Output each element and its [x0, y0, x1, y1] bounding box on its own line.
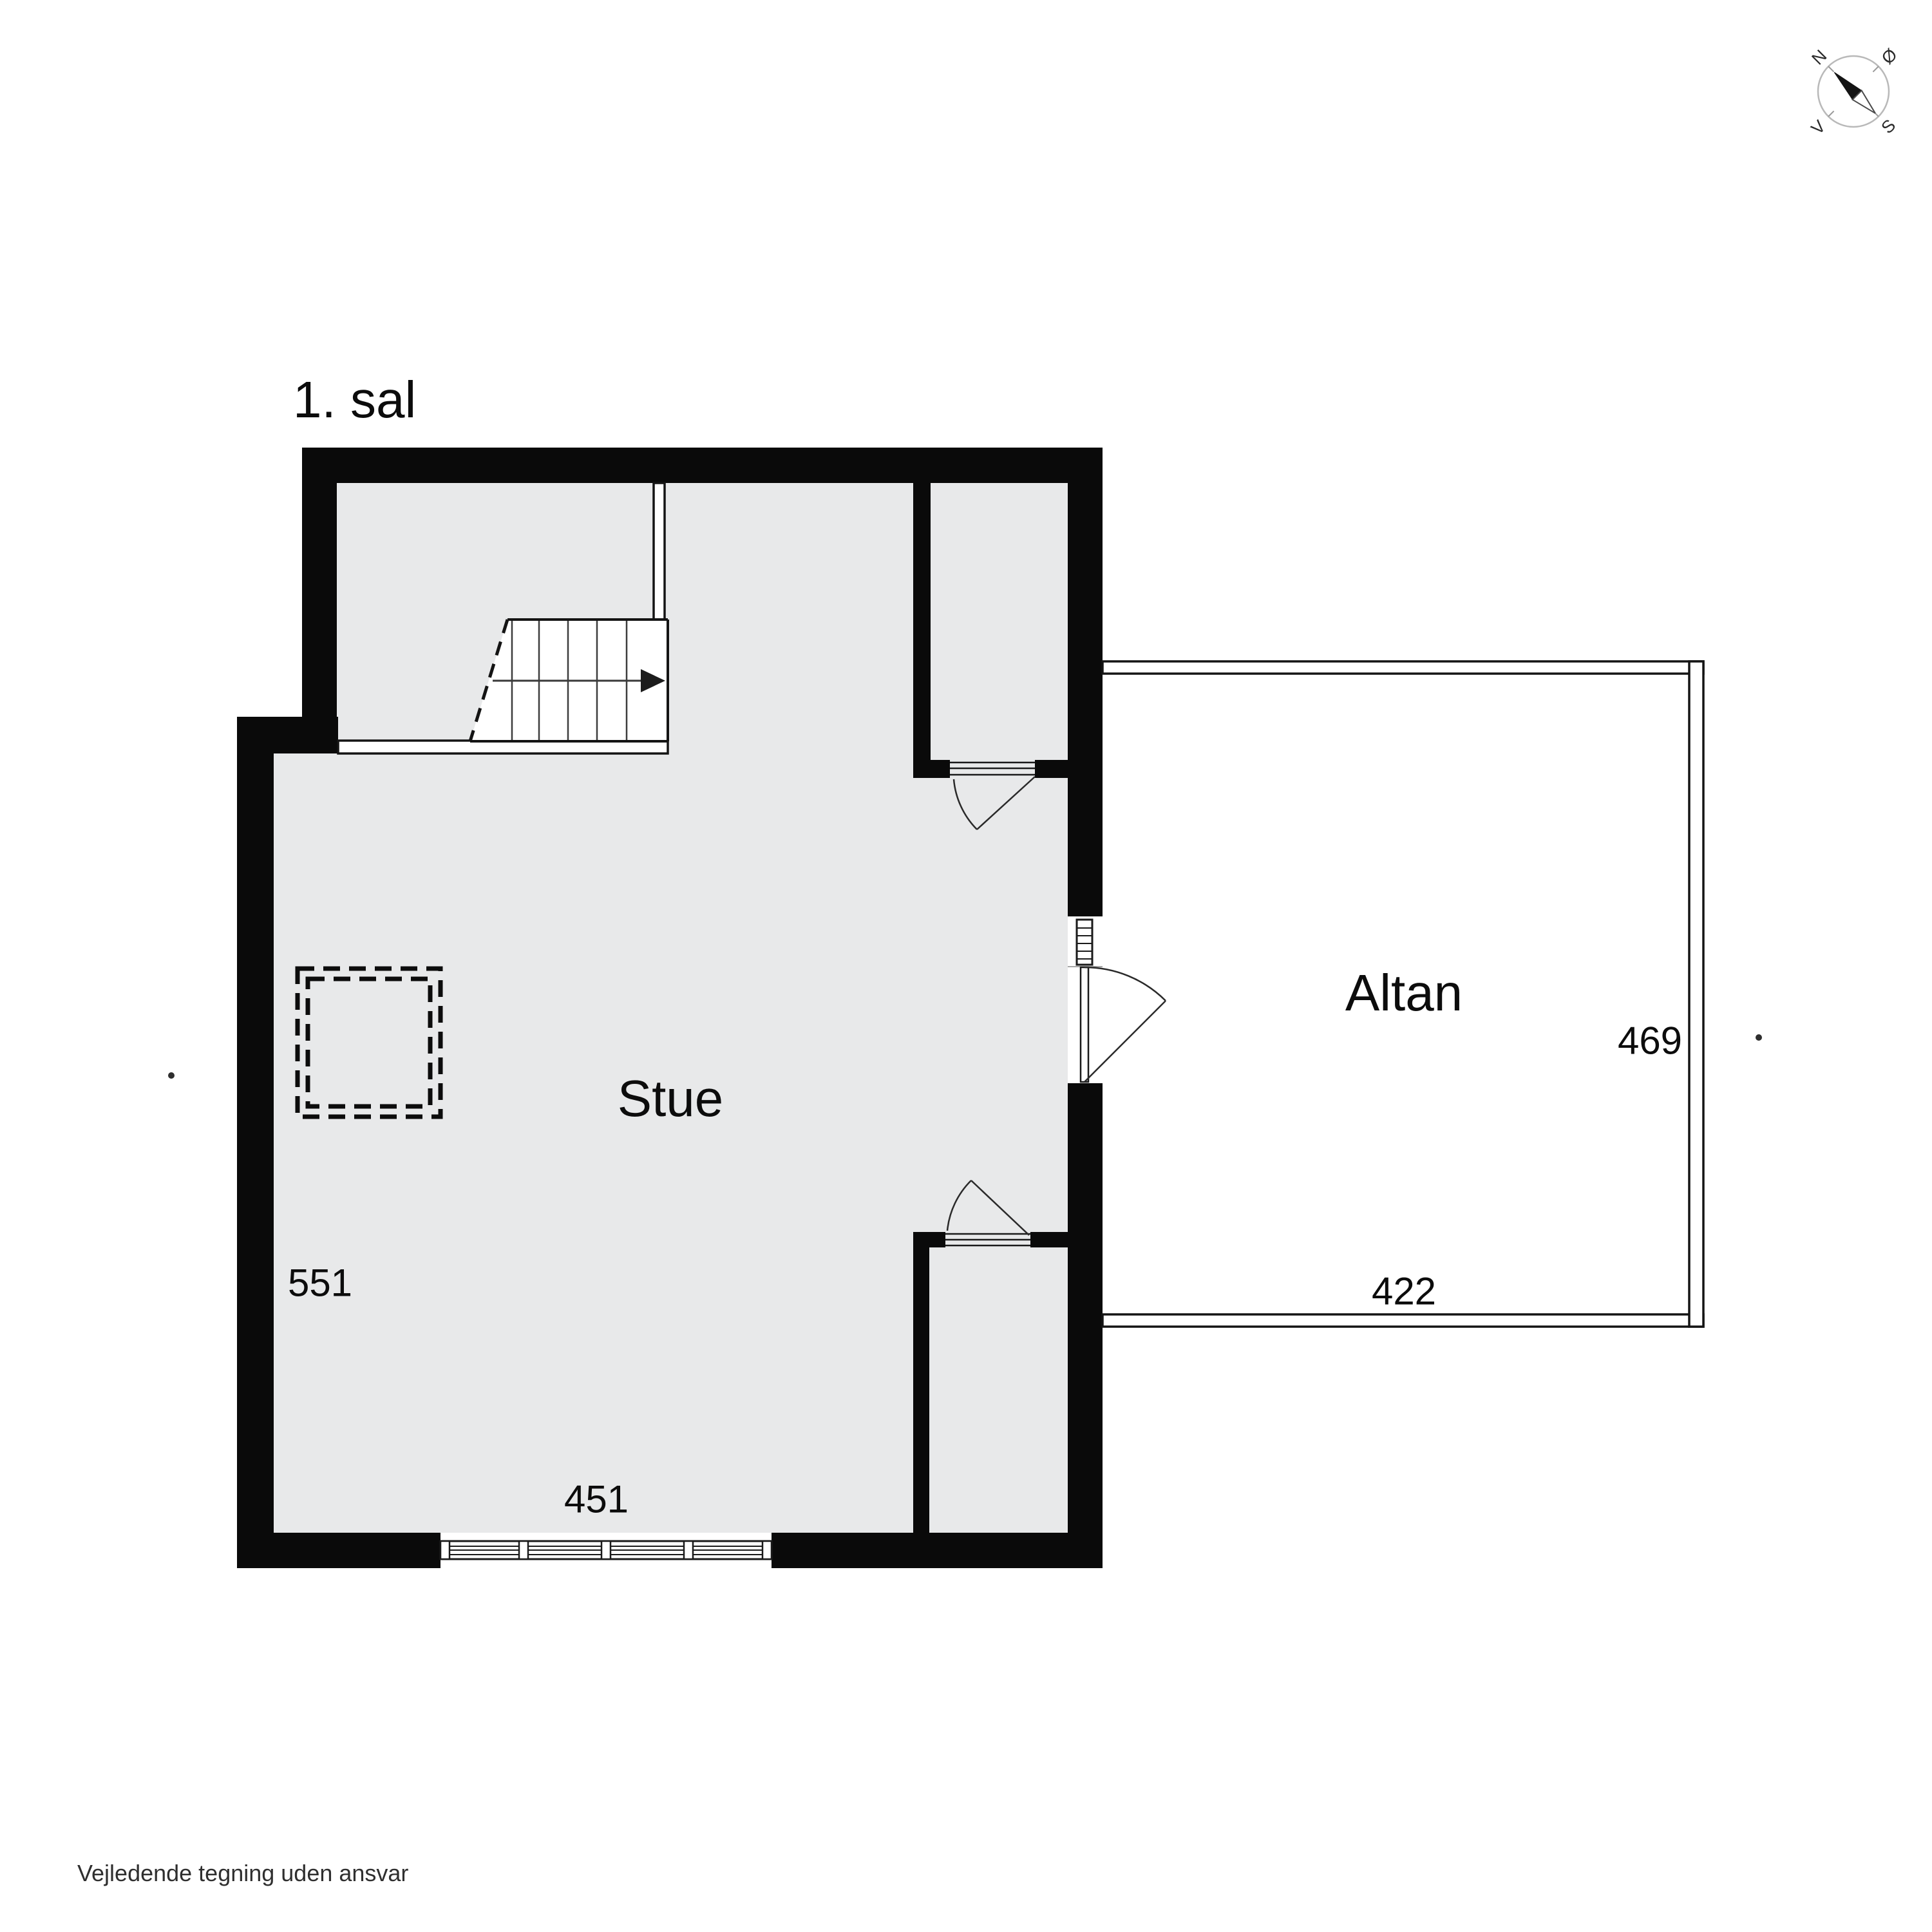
lower-room-top-right-stub [1030, 1232, 1068, 1247]
right-reference-dot [1756, 1034, 1762, 1041]
floor-plan-page: N Ø S V 1. sal Stue Altan 551 451 469 42… [0, 0, 1932, 1932]
floor-plan-drawing: N Ø S V [0, 0, 1932, 1932]
altan-sidelight-window [1077, 920, 1092, 965]
dimension-altan-depth: 469 [1618, 1019, 1682, 1063]
dimension-altan-width: 422 [1372, 1269, 1436, 1314]
altan-door [1068, 916, 1166, 1083]
disclaimer-text: Vejledende tegning uden ansvar [77, 1860, 408, 1887]
wall-left-lower [237, 717, 274, 1568]
upper-room-bottom-left-stub [913, 760, 950, 778]
wall-top [302, 448, 1103, 483]
wall-right-lower [1068, 1082, 1103, 1568]
floor-title: 1. sal [293, 370, 416, 430]
stue-floor [274, 483, 1068, 1533]
upper-room-bottom-right-stub [1035, 760, 1068, 778]
altan-railing-right [1689, 661, 1703, 1327]
altan-railing-bottom [1103, 1314, 1703, 1327]
bottom-window [440, 1533, 772, 1568]
upper-room-left-wall [913, 483, 931, 761]
room-label-altan: Altan [1345, 963, 1463, 1023]
wall-bottom-right [772, 1533, 1103, 1568]
compass-label-south: S [1877, 115, 1899, 137]
compass-label-east: Ø [1878, 45, 1901, 68]
compass-label-west: V [1808, 117, 1830, 138]
wall-left-upper [302, 448, 337, 718]
left-reference-dot [168, 1072, 175, 1079]
lower-room-left-wall [913, 1232, 929, 1533]
lower-room-top-left-stub [913, 1232, 945, 1247]
compass-rose: N Ø S V [1773, 10, 1932, 173]
wall-right-upper [1068, 448, 1103, 916]
room-label-stue: Stue [618, 1069, 724, 1128]
wall-bottom-left [237, 1533, 440, 1568]
door-leaf-closed [1081, 967, 1088, 1082]
compass-label-north: N [1808, 46, 1830, 68]
dimension-stue-width: 451 [564, 1477, 629, 1522]
stair-railing [654, 483, 665, 621]
dimension-stue-depth: 551 [288, 1261, 352, 1305]
altan-railing-top [1103, 661, 1703, 674]
